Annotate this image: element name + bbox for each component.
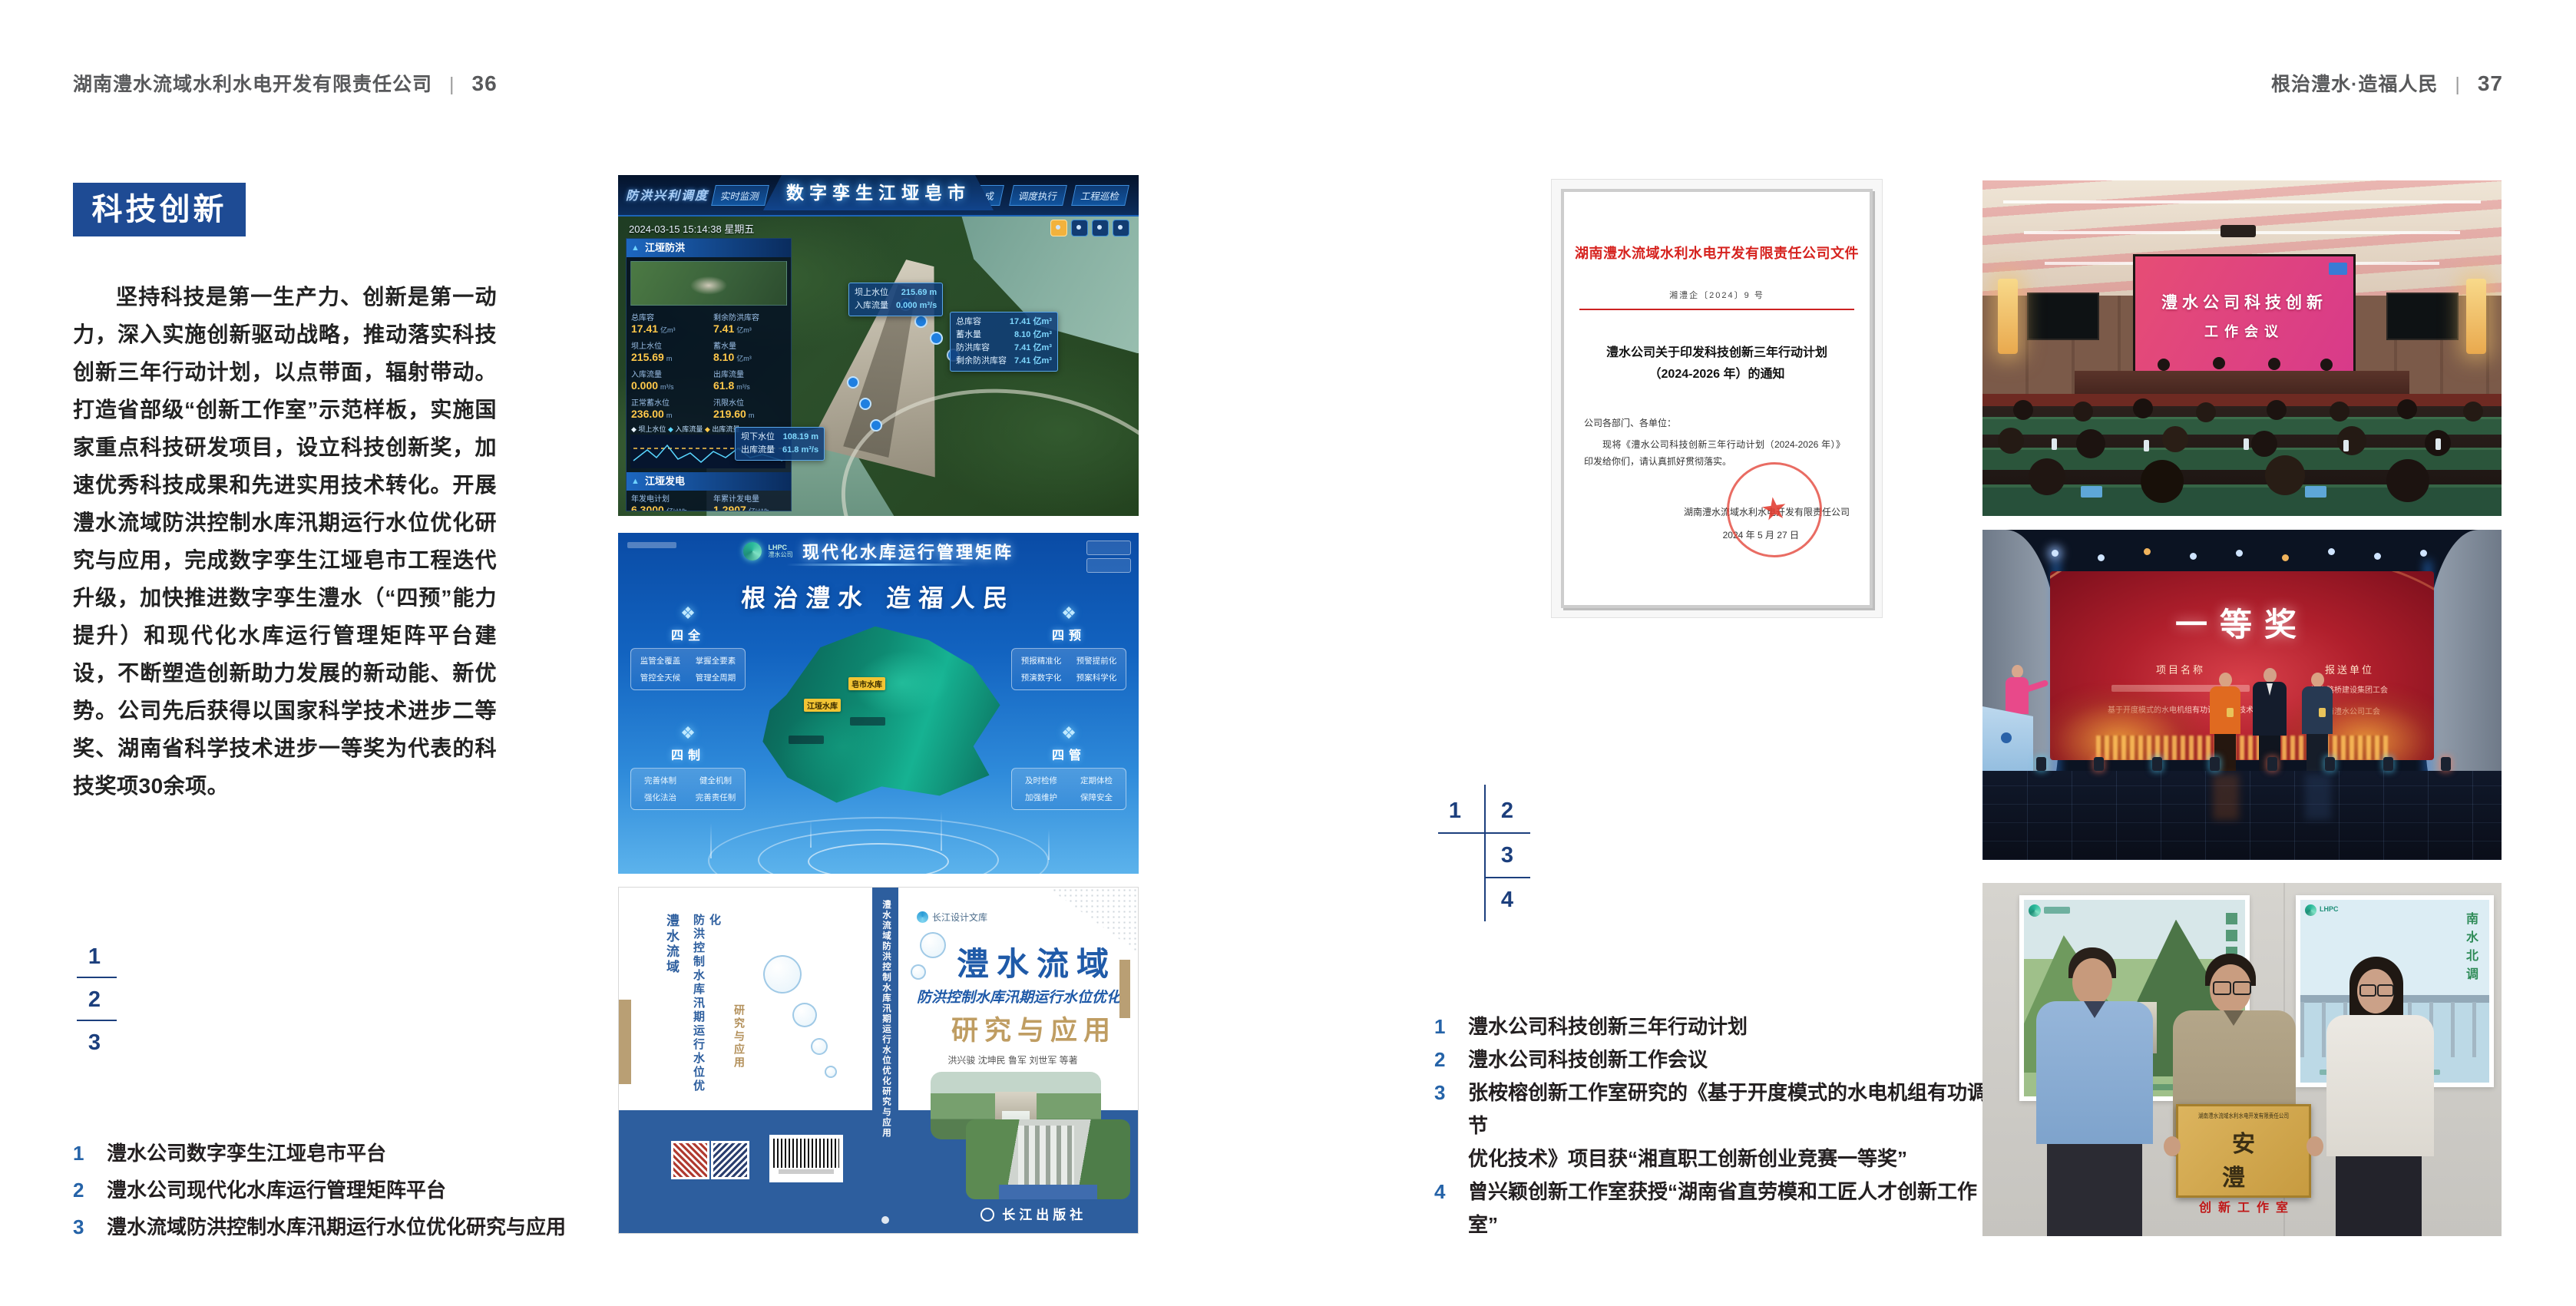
panel-title-power: 江垭发电 bbox=[627, 472, 791, 491]
back-cover-accent-bar bbox=[619, 1000, 631, 1084]
figure-number-divider bbox=[77, 977, 117, 978]
caption-row: 2 澧水公司科技创新工作会议 bbox=[1434, 1043, 1995, 1076]
speaker-head bbox=[2158, 359, 2170, 371]
front-title-main: 澧水流域 bbox=[903, 938, 1116, 985]
figure-number-2: 2 bbox=[79, 987, 110, 1013]
user-icon bbox=[1050, 220, 1067, 236]
company-name: 湖南澧水流域水利水电开发有限责任公司 bbox=[73, 74, 432, 95]
spine-title: 澧水流域防洪控制水库汛期运行水位优化研究与应用 bbox=[880, 900, 892, 1139]
figure-official-document: 湖南澧水流域水利水电开发有限责任公司文件 湘澧企〔2024〕9 号 澧水公司关于… bbox=[1551, 179, 1883, 618]
figure-number-grid: 1 2 3 4 bbox=[1426, 775, 1533, 937]
document-body: 现将《澧水公司科技创新三年行动计划（2024-2026 年）》印发给你们，请认真… bbox=[1584, 436, 1845, 470]
light-pillar bbox=[941, 811, 942, 851]
glasses-icon bbox=[2213, 981, 2231, 995]
caption-text: 澧水公司科技创新三年行动计划 bbox=[1468, 1010, 1748, 1043]
figure-plaque-photo: LHPC 南水北调 湖南澧水流域水利水电开发有限责任公司 安 澧 创新工作室 bbox=[1982, 883, 2502, 1236]
caption-text: 澧水公司现代化水库运行管理矩阵平台 bbox=[107, 1174, 446, 1207]
caption-number: 2 bbox=[73, 1174, 94, 1207]
map-label-jiangya: 江垭水库 bbox=[804, 699, 841, 712]
figure-award-photo: 一等奖 项目名称 报送单位 基于开度模式的水电机组有功调节优化技术 湖南路桥建设… bbox=[1982, 530, 2502, 860]
caption-number: 2 bbox=[1434, 1043, 1456, 1076]
grid-hline-short bbox=[1484, 877, 1530, 878]
host-head bbox=[2012, 665, 2023, 678]
page-right-header: 根治澧水·造福人民|37 bbox=[2271, 69, 2503, 97]
locate-icon bbox=[1092, 220, 1109, 236]
figure-book-cover: 澧水流域 防洪控制水库汛期运行水位优化 研究与应用 澧水流域防洪控制水库汛期运行… bbox=[618, 887, 1139, 1234]
caption-number: 4 bbox=[1434, 1175, 1456, 1242]
dashboard-corner-label: 防洪兴利调度 bbox=[626, 185, 709, 203]
spine-publisher-mark bbox=[881, 1216, 889, 1224]
caption-row: 4 曾兴颖创新工作室获授“湖南省直劳模和工匠人才创新工作室” bbox=[1434, 1175, 1995, 1242]
caption-text: 澧水流域防洪控制水库汛期运行水位优化研究与应用 bbox=[107, 1211, 566, 1244]
cover-photo-dam bbox=[966, 1119, 1130, 1199]
header-divider: | bbox=[449, 74, 455, 95]
water-droplet bbox=[811, 1038, 828, 1055]
front-title-tail: 研究与应用 bbox=[903, 1009, 1116, 1048]
woman-torso bbox=[2326, 1015, 2434, 1156]
back-title-2: 防洪控制水库汛期运行水位优化 bbox=[690, 914, 723, 1103]
audience-heads-row bbox=[2013, 400, 2033, 420]
caption-number: 1 bbox=[73, 1137, 94, 1170]
dam-thumbnail bbox=[630, 261, 787, 306]
man-left-pants bbox=[2047, 1144, 2142, 1236]
glasses-icon bbox=[2233, 981, 2251, 995]
caption-row: 1 澧水公司科技创新三年行动计划 bbox=[1434, 1010, 1995, 1043]
grid-vline bbox=[1484, 785, 1486, 921]
grid-hline bbox=[1438, 832, 1530, 834]
poster-logo-text: LHPC bbox=[2320, 905, 2339, 913]
man-left-face bbox=[2072, 958, 2112, 1006]
header-divider: | bbox=[2455, 74, 2461, 95]
figure-captions-left: 1 澧水公司数字孪生江垭皂市平台 2 澧水公司现代化水库运行管理矩阵平台 3 澧… bbox=[73, 1137, 580, 1244]
magazine-spread: { "colors": { "accent_blue": "#1e4b94", … bbox=[0, 0, 2576, 1306]
figure-meeting-photo: 澧水公司科技创新 工作会议 bbox=[1982, 180, 2502, 516]
water-droplet bbox=[825, 1066, 837, 1078]
plaque-title: 安 澧 bbox=[2178, 1125, 2309, 1192]
meeting-screen: 澧水公司科技创新 工作会议 bbox=[2133, 254, 2356, 375]
stage-step bbox=[1982, 394, 2502, 406]
light-pillar bbox=[1048, 829, 1050, 860]
page-number: 37 bbox=[2478, 71, 2503, 95]
screen-logo bbox=[2329, 263, 2347, 275]
plaque-subtitle: 创新工作室 bbox=[2178, 1197, 2309, 1215]
water-droplet bbox=[763, 955, 802, 994]
hand bbox=[2306, 1136, 2323, 1156]
matrix-group-siyu: ❖ 四预 预报精准化 预警提前化 预演数字化 预案科学化 bbox=[1011, 603, 1126, 690]
watershed-map bbox=[741, 606, 1017, 822]
caption-number: 3 bbox=[1434, 1076, 1456, 1142]
page-number: 36 bbox=[472, 71, 498, 95]
callout-capacity: 总库容17.41 亿m³ 蓄水量8.10 亿m³ 防洪库容7.41 亿m³ 剩余… bbox=[950, 312, 1058, 372]
cube-icon: ❖ bbox=[630, 723, 746, 743]
wall-tv bbox=[2386, 293, 2459, 340]
alert-icon bbox=[1113, 220, 1129, 236]
speaker-head bbox=[2213, 357, 2225, 369]
wall-tv bbox=[2027, 293, 2099, 340]
innovation-plaque: 湖南澧水流域水利水电开发有限责任公司 安 澧 创新工作室 bbox=[2176, 1104, 2311, 1198]
document-salutation: 公司各部门、各单位： bbox=[1584, 416, 1676, 429]
map-label-zaoshi: 皂市水库 bbox=[848, 677, 885, 690]
official-seal: ★ bbox=[1721, 456, 1828, 564]
body-paragraph: 坚持科技是第一生产力、创新是第一动力，深入实施创新驱动战略，推动落实科技创新三年… bbox=[73, 278, 497, 805]
water-bottle bbox=[2052, 438, 2057, 450]
power-stats-grid: 年发电计划6.3000亿kWh 年累计发电量1.2907亿kWh 月累计发电量3… bbox=[627, 491, 791, 511]
caption-number: 1 bbox=[1434, 1010, 1456, 1043]
award-col1-label: 项目名称 bbox=[2104, 662, 2257, 676]
figure-captions-right: 1 澧水公司科技创新三年行动计划 2 澧水公司科技创新工作会议 3 张桉榕创新工… bbox=[1434, 1010, 1995, 1242]
caption-row: 1 澧水公司数字孪生江垭皂市平台 bbox=[73, 1137, 580, 1170]
callout-downstream: 坝下水位108.19 m 出库流量61.8 m³/s bbox=[735, 427, 825, 461]
rostrum-table bbox=[2075, 371, 2409, 394]
publisher-line: 长江出版社 bbox=[941, 1204, 1126, 1223]
qr-code bbox=[711, 1141, 749, 1179]
qr-code bbox=[671, 1141, 709, 1179]
slogan-text: 根治澧水·造福人民 bbox=[2271, 74, 2438, 95]
matrix-datetime bbox=[627, 542, 676, 548]
back-title-3: 研究与应用 bbox=[732, 914, 747, 1103]
lhpc-logo-icon bbox=[743, 542, 762, 560]
caption-text: 曾兴颖创新工作室获授“湖南省直劳模和工匠人才创新工作室” bbox=[1468, 1175, 1995, 1242]
flood-stats-grid: 总库容17.41亿m³ 剩余防洪库容7.41亿m³ 坝上水位215.69m 蓄水… bbox=[627, 309, 791, 423]
book-spine: 澧水流域防洪控制水库汛期运行水位优化研究与应用 bbox=[872, 888, 898, 1234]
figure-management-matrix: LHPC 澧水公司 现代化水库运行管理矩阵 根治澧水 造福人民 皂市水库 江垭水… bbox=[618, 533, 1139, 874]
dashboard-timestamp: 2024-03-15 15:14:38 星期五 bbox=[629, 221, 754, 236]
caption-text: 张桉榕创新工作室研究的《基于开度模式的水电机组有功调节 bbox=[1468, 1076, 1995, 1142]
document-sheet: 湖南澧水流域水利水电开发有限责任公司文件 湘澧企〔2024〕9 号 澧水公司关于… bbox=[1561, 189, 1873, 608]
section-title: 科技创新 bbox=[73, 183, 246, 236]
document-subject: 澧水公司关于印发科技创新三年行动计划 （2024-2026 年）的通知 bbox=[1564, 342, 1870, 385]
woman-pants bbox=[2336, 1156, 2422, 1236]
caption-text: 澧水公司数字孪生江垭皂市平台 bbox=[107, 1137, 386, 1170]
poster-right-calligraphy: 南水北调 bbox=[2462, 912, 2480, 986]
glasses-icon bbox=[2359, 984, 2376, 997]
winner-suit-body bbox=[2253, 682, 2287, 736]
close-button bbox=[1086, 541, 1131, 555]
wall-lamp bbox=[1998, 279, 2018, 354]
dashboard-toolbar-icons bbox=[1047, 220, 1129, 240]
trophy bbox=[2227, 708, 2234, 717]
floor-reflection bbox=[2305, 774, 2331, 820]
trophy bbox=[2319, 708, 2326, 717]
caption-row-continued: 优化技术》项目获“湘直职工创新创业竞赛一等奖” bbox=[1468, 1142, 1995, 1175]
back-title-1: 澧水流域 bbox=[662, 914, 681, 1103]
figure-number-3: 3 bbox=[1492, 843, 1523, 868]
cube-icon: ❖ bbox=[1011, 603, 1126, 623]
award-col2-label: 报送单位 bbox=[2273, 662, 2426, 676]
matrix-group-sizhi: ❖ 四制 完善体制 健全机制 强化法治 完善责任制 bbox=[630, 723, 746, 810]
authors-line: 洪兴骏 沈坤民 鲁军 刘世军 等著 bbox=[911, 1053, 1115, 1066]
moving-light-fixtures bbox=[2036, 757, 2451, 774]
flood-data-panel: 江垭防洪 总库容17.41亿m³ 剩余防洪库容7.41亿m³ 坝上水位215.6… bbox=[626, 238, 792, 511]
winner-orange-body bbox=[2210, 686, 2240, 734]
man-left-torso bbox=[2036, 1001, 2153, 1144]
caption-row: 3 张桉榕创新工作室研究的《基于开度模式的水电机组有功调节 bbox=[1434, 1076, 1995, 1142]
award-screen: 一等奖 项目名称 报送单位 基于开度模式的水电机组有功调节优化技术 湖南路桥建设… bbox=[2050, 571, 2434, 760]
publisher-name: 长江出版社 bbox=[1002, 1208, 1086, 1223]
speaker-head bbox=[2268, 358, 2280, 370]
screen-title-line2: 工作会议 bbox=[2135, 321, 2353, 341]
tissue-box bbox=[2305, 486, 2326, 498]
cube-icon: ❖ bbox=[630, 603, 746, 623]
screen-title-line1: 澧水公司科技创新 bbox=[2135, 290, 2353, 313]
caption-number: 3 bbox=[73, 1211, 94, 1244]
tissue-box bbox=[2081, 486, 2102, 498]
audience-heads-row bbox=[2029, 458, 2065, 495]
tab-dispatch-execute: 调度执行 bbox=[1009, 185, 1067, 206]
tab-project-inspection: 工程巡检 bbox=[1071, 185, 1129, 206]
winner-head bbox=[2219, 673, 2232, 687]
caption-text: 优化技术》项目获“湘直职工创新创业竞赛一等奖” bbox=[1468, 1142, 1907, 1175]
winner-head bbox=[2264, 668, 2277, 683]
front-accent-bar bbox=[1119, 960, 1130, 1018]
map-label-small bbox=[789, 736, 824, 744]
caption-row: 3 澧水流域防洪控制水库汛期运行水位优化研究与应用 bbox=[73, 1211, 580, 1244]
page-left-header: 湖南澧水流域水利水电开发有限责任公司|36 bbox=[73, 69, 498, 97]
light-pillar bbox=[810, 820, 812, 848]
floor-reflection bbox=[2213, 774, 2239, 820]
figure-number-divider bbox=[77, 1020, 117, 1021]
audience-table bbox=[1982, 417, 2502, 435]
gate-marker-icons bbox=[847, 376, 901, 445]
matrix-header: LHPC 澧水公司 现代化水库运行管理矩阵 bbox=[618, 539, 1139, 564]
winner-head bbox=[2311, 673, 2324, 687]
stage-floor bbox=[1982, 771, 2502, 860]
front-title-sub: 防洪控制水库汛期运行水位优化 bbox=[901, 986, 1121, 1007]
speaker-head bbox=[2320, 359, 2333, 371]
back-cover-titles: 澧水流域 防洪控制水库汛期运行水位优化 研究与应用 bbox=[662, 914, 747, 1103]
figure-number-1: 1 bbox=[1440, 798, 1470, 824]
page-left: 湖南澧水流域水利水电开发有限责任公司|36 科技创新 坚持科技是第一生产力、创新… bbox=[0, 0, 1288, 1306]
figure-digital-twin-platform: 防洪兴利调度 实时监测 洪水预报 防洪预警 风险预判 预案生成 调度执行 工程巡… bbox=[618, 175, 1139, 516]
caption-row: 2 澧水公司现代化水库运行管理矩阵平台 bbox=[73, 1174, 580, 1207]
wall-lamp bbox=[2466, 279, 2486, 354]
panel-title-flood: 江垭防洪 bbox=[627, 239, 791, 257]
lhpc-logo-text: LHPC 澧水公司 bbox=[768, 544, 792, 559]
host-body bbox=[2006, 677, 2029, 714]
publisher-logo-icon bbox=[917, 911, 928, 923]
dashboard-header: 防洪兴利调度 实时监测 洪水预报 防洪预警 风险预判 预案生成 调度执行 工程巡… bbox=[618, 175, 1139, 217]
document-red-rule bbox=[1579, 309, 1854, 310]
matrix-group-siguan: ❖ 四管 及时检修 定期体检 加强维护 保障安全 bbox=[1011, 723, 1126, 810]
projector bbox=[2221, 225, 2256, 237]
plaque-header: 湖南澧水流域水利水电开发有限责任公司 bbox=[2190, 1112, 2297, 1120]
series-badge: 长江设计文库 bbox=[917, 911, 987, 924]
light-pillar bbox=[710, 823, 712, 858]
audience-heads-row bbox=[1998, 428, 2024, 454]
tab-realtime-monitor: 实时监测 bbox=[711, 185, 769, 206]
cube-icon: ❖ bbox=[1011, 723, 1126, 743]
page-right: 根治澧水·造福人民|37 湖南澧水流域水利水电开发有限责任公司文件 湘澧企〔20… bbox=[1288, 0, 2576, 1306]
water-droplet bbox=[792, 1003, 817, 1027]
callout-upstream: 坝上水位215.69 m 入库流量0.000 m³/s bbox=[848, 283, 943, 316]
clock-icon bbox=[1071, 220, 1088, 236]
figure-number-1: 1 bbox=[79, 944, 110, 970]
document-title: 湖南澧水流域水利水电开发有限责任公司文件 bbox=[1564, 243, 1870, 263]
publisher-logo-icon bbox=[980, 1208, 994, 1222]
hand bbox=[2164, 1136, 2181, 1156]
figure-number-3: 3 bbox=[79, 1030, 110, 1056]
caption-text: 澧水公司科技创新工作会议 bbox=[1468, 1043, 1708, 1076]
menu-button bbox=[1086, 558, 1131, 573]
spotlights-row bbox=[2052, 550, 2058, 557]
document-number: 湘澧企〔2024〕9 号 bbox=[1564, 289, 1870, 301]
matrix-title: 现代化水库运行管理矩阵 bbox=[802, 539, 1014, 564]
matrix-header-underline bbox=[786, 564, 971, 566]
ceiling-light-bar bbox=[2003, 200, 2481, 203]
ripple-ring bbox=[808, 843, 949, 874]
barcode bbox=[769, 1135, 843, 1182]
matrix-group-siquan: ❖ 四全 监管全覆盖 掌握全要素 管控全天候 管理全周期 bbox=[630, 603, 746, 690]
glasses-icon bbox=[2377, 984, 2394, 997]
figure-number-2: 2 bbox=[1492, 798, 1523, 824]
dashboard-title: 数字孪生江垭皂市 bbox=[763, 175, 994, 210]
figure-number-4: 4 bbox=[1492, 888, 1523, 913]
winner-navy-body bbox=[2302, 686, 2333, 734]
map-label-small bbox=[850, 717, 885, 726]
